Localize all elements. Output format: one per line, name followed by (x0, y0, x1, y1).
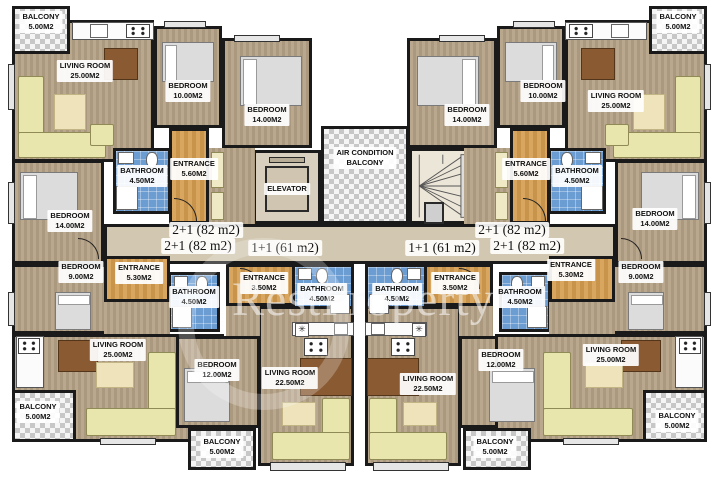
room-label-living-top-left: LIVING ROOM25.00M2 (57, 60, 113, 82)
unit-label-left-bottom: 2+1 (82 m2) (161, 238, 235, 254)
room-area: 9.00M2 (621, 272, 660, 282)
rug (585, 362, 623, 388)
sink-icon (611, 24, 629, 38)
room-area: 5.00M2 (203, 447, 240, 457)
room-area: 22.50M2 (403, 384, 453, 394)
room-name: BATHROOM (120, 166, 164, 176)
room-name: BEDROOM (168, 81, 207, 91)
rug (54, 94, 86, 130)
window (704, 182, 711, 224)
window (8, 292, 15, 326)
washing-machine-icon: ✳ (295, 323, 309, 337)
bed (628, 292, 664, 330)
room-label-bedroom9-bottom-left: BEDROOM9.00M2 (58, 261, 103, 283)
toilet-icon (316, 268, 328, 284)
shower-icon (172, 306, 192, 328)
room-name: BALCONY (658, 411, 695, 421)
room-name: BEDROOM (481, 350, 520, 360)
room-label-bedroom12-center-right: BEDROOM12.00M2 (478, 349, 523, 371)
room-label-bedroom9-bottom-right: BEDROOM9.00M2 (618, 261, 663, 283)
room-name: ENTRANCE (550, 260, 592, 270)
room-label-bathroom-bottom-left: BATHROOM4.50M2 (169, 286, 219, 308)
utility-box (424, 202, 444, 224)
stove-icon (126, 24, 150, 38)
armchair (605, 124, 629, 146)
rug (282, 402, 316, 426)
room-area: 14.00M2 (247, 115, 286, 125)
sink-icon (585, 152, 601, 164)
room-name: BATHROOM (375, 284, 419, 294)
room-area: 14.00M2 (447, 115, 486, 125)
dining-table (581, 48, 615, 80)
room-name: LIVING ROOM (265, 368, 315, 378)
window (164, 21, 206, 28)
room-name: BEDROOM (621, 262, 660, 272)
shower-icon (581, 186, 603, 210)
room-name: ENTRANCE (243, 273, 285, 283)
room-name: ELEVATOR (267, 184, 307, 194)
window (100, 438, 156, 445)
stove-icon (18, 338, 40, 354)
room-name: AIR CONDITION (336, 148, 393, 158)
shower-icon (116, 186, 138, 210)
room-area: 5.30M2 (550, 270, 592, 280)
wardrobe (211, 192, 224, 220)
room-name: BATHROOM (300, 284, 344, 294)
room-label-living-center-right: LIVING ROOM22.50M2 (400, 373, 456, 395)
sink-icon (118, 152, 134, 164)
room-label-entrance-bottom-right: ENTRANCE5.30M2 (547, 259, 595, 281)
sofa (272, 432, 350, 460)
room-name: LIVING ROOM (93, 340, 143, 350)
unit-label-center-right: 1+1 (61 m2) (405, 240, 479, 256)
room-name: BATHROOM (555, 166, 599, 176)
room-area: 4.50M2 (555, 176, 599, 186)
room-name: BEDROOM (447, 105, 486, 115)
room-area: 5.30M2 (118, 273, 160, 283)
window (704, 64, 711, 110)
window (513, 21, 555, 28)
room-area: 10.00M2 (168, 91, 207, 101)
unit-label-center-left: 1+1 (61 m2) (248, 240, 322, 256)
room-name: BEDROOM (197, 360, 236, 370)
sink-icon (407, 268, 421, 280)
wardrobe (495, 192, 508, 220)
room-name: ENTRANCE (505, 159, 547, 169)
room-name: ENTRANCE (434, 273, 476, 283)
hallway-floor (459, 306, 493, 336)
room-ac-balcony (321, 126, 409, 224)
window (704, 292, 711, 326)
window (563, 438, 619, 445)
stove-icon (569, 24, 593, 38)
room-area: 12.00M2 (481, 360, 520, 370)
room-name: LIVING ROOM (591, 91, 641, 101)
sink-icon (371, 323, 385, 335)
room-name: BALCONY (203, 437, 240, 447)
room-name: BEDROOM (523, 81, 562, 91)
shower-icon (527, 306, 547, 328)
floor-plan: ✳ ✳ BALCONY5.00M2 LIVING RO (0, 0, 719, 480)
room-label-bathroom-center-left: BATHROOM4.50M2 (297, 283, 347, 305)
room-name: BEDROOM (247, 105, 286, 115)
room-area: 14.00M2 (635, 219, 674, 229)
room-label-entrance-center-left: ENTRANCE3.50M2 (240, 272, 288, 294)
room-name: BALCONY (476, 437, 513, 447)
bed (55, 292, 91, 330)
rug (403, 402, 437, 426)
room-label-bathroom-top-right: BATHROOM4.50M2 (552, 165, 602, 187)
room-label-bathroom-bottom-right: BATHROOM4.50M2 (495, 286, 545, 308)
sofa (86, 408, 176, 436)
room-name: BALCONY (659, 12, 696, 22)
room-area: 5.00M2 (659, 22, 696, 32)
bed (240, 56, 302, 106)
room-area: 3.50M2 (243, 283, 285, 293)
room-area: 10.00M2 (523, 91, 562, 101)
sink-icon (90, 24, 108, 38)
bed (417, 56, 479, 106)
room-label-balcony-center-left: BALCONY5.00M2 (200, 436, 243, 458)
room-label-entrance-bottom-left: ENTRANCE5.30M2 (115, 262, 163, 284)
hallway-floor (226, 306, 260, 336)
room-label-balcony-center-right: BALCONY5.00M2 (473, 436, 516, 458)
window (234, 35, 280, 42)
room-area: 4.50M2 (300, 294, 344, 304)
room-label-bedroom10-top-left: BEDROOM10.00M2 (165, 80, 210, 102)
room-name: BEDROOM (50, 211, 89, 221)
room-label-entrance-center-right: ENTRANCE3.50M2 (431, 272, 479, 294)
room-area: 5.00M2 (658, 421, 695, 431)
room-name: LIVING ROOM (586, 345, 636, 355)
room-label-balcony-bottom-left: BALCONY5.00M2 (16, 401, 59, 423)
room-label-bathroom-top-left: BATHROOM4.50M2 (117, 165, 167, 187)
room-label-bedroom14-top-left: BEDROOM14.00M2 (244, 104, 289, 126)
ac-balcony-label: AIR CONDITIONBALCONY (333, 147, 396, 169)
window (8, 182, 15, 224)
toilet-icon (391, 268, 403, 284)
room-area: 14.00M2 (50, 221, 89, 231)
room-area: 5.00M2 (19, 412, 56, 422)
room-area: 5.60M2 (505, 169, 547, 179)
rug (96, 362, 134, 388)
unit-label-right-bottom: 2+1 (82 m2) (490, 238, 564, 254)
elevator-icon (269, 157, 305, 163)
washing-machine-icon: ✳ (412, 323, 426, 337)
room-area: 25.00M2 (586, 355, 636, 365)
sofa (369, 432, 447, 460)
room-area: 4.50M2 (498, 297, 542, 307)
room-label-bedroom12-center-left: BEDROOM12.00M2 (194, 359, 239, 381)
unit-label-left-top: 2+1 (82 m2) (169, 222, 243, 238)
sofa (543, 408, 633, 436)
room-area: 9.00M2 (61, 272, 100, 282)
room-label-living-bottom-left: LIVING ROOM25.00M2 (90, 339, 146, 361)
bed (489, 368, 535, 422)
room-label-entrance-top-left: ENTRANCE5.60M2 (170, 158, 218, 180)
bed (162, 42, 214, 82)
hallway-floor (104, 302, 170, 334)
room-name: BALCONY (19, 402, 56, 412)
sink-icon (298, 268, 312, 280)
hallway-floor (549, 302, 615, 334)
room-area: 12.00M2 (197, 370, 236, 380)
window (439, 35, 485, 42)
room-name: BEDROOM (61, 262, 100, 272)
stove-icon (391, 338, 415, 356)
room-name: LIVING ROOM (403, 374, 453, 384)
room-area: 5.00M2 (476, 447, 513, 457)
elevator-label: ELEVATOR (264, 183, 310, 195)
room-label-living-top-right: LIVING ROOM25.00M2 (588, 90, 644, 112)
armchair (90, 124, 114, 146)
room-name: ENTRANCE (118, 263, 160, 273)
stove-icon (679, 338, 701, 354)
room-area: 25.00M2 (591, 101, 641, 111)
room-name: BALCONY (336, 158, 393, 168)
room-name: ENTRANCE (173, 159, 215, 169)
room-label-living-center-left: LIVING ROOM22.50M2 (262, 367, 318, 389)
room-label-balcony-top-right: BALCONY5.00M2 (656, 11, 699, 33)
bed (505, 42, 557, 82)
room-label-balcony-bottom-right: BALCONY5.00M2 (655, 410, 698, 432)
room-name: BALCONY (22, 12, 59, 22)
room-label-bedroom14-top-right: BEDROOM14.00M2 (444, 104, 489, 126)
room-name: BEDROOM (635, 209, 674, 219)
room-label-entrance-top-right: ENTRANCE5.60M2 (502, 158, 550, 180)
room-area: 25.00M2 (93, 350, 143, 360)
sink-icon (334, 323, 348, 335)
room-label-bedroom14-bottom-left: BEDROOM14.00M2 (47, 210, 92, 232)
room-name: BATHROOM (172, 287, 216, 297)
room-area: 5.00M2 (22, 22, 59, 32)
room-label-bedroom14-bottom-right: BEDROOM14.00M2 (632, 208, 677, 230)
room-name: BATHROOM (498, 287, 542, 297)
room-area: 22.50M2 (265, 378, 315, 388)
room-label-living-bottom-right: LIVING ROOM25.00M2 (583, 344, 639, 366)
room-area: 4.50M2 (120, 176, 164, 186)
window (8, 64, 15, 110)
window-sill (270, 462, 346, 471)
room-area: 4.50M2 (375, 294, 419, 304)
room-label-bathroom-center-right: BATHROOM4.50M2 (372, 283, 422, 305)
stove-icon (304, 338, 328, 356)
room-label-balcony-top-left: BALCONY5.00M2 (19, 11, 62, 33)
room-area: 3.50M2 (434, 283, 476, 293)
room-label-bedroom10-top-right: BEDROOM10.00M2 (520, 80, 565, 102)
window-sill (373, 462, 449, 471)
unit-label-right-top: 2+1 (82 m2) (475, 222, 549, 238)
room-name: LIVING ROOM (60, 61, 110, 71)
room-area: 4.50M2 (172, 297, 216, 307)
room-area: 5.60M2 (173, 169, 215, 179)
room-area: 25.00M2 (60, 71, 110, 81)
